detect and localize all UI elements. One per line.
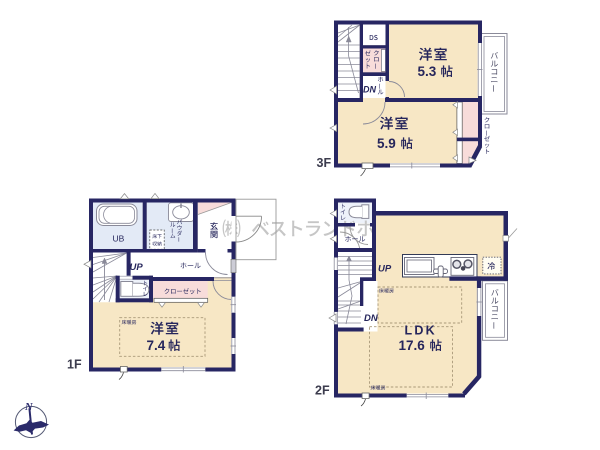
svg-text:7.4: 7.4 <box>147 338 166 353</box>
svg-text:LDK: LDK <box>405 324 437 338</box>
svg-text:UP: UP <box>378 264 392 275</box>
svg-text:17.6: 17.6 <box>399 338 426 353</box>
svg-text:DN: DN <box>363 85 376 95</box>
svg-text:DN: DN <box>364 313 379 324</box>
svg-text:5.9: 5.9 <box>377 136 396 151</box>
svg-text:1F: 1F <box>67 358 82 372</box>
svg-text:5.3: 5.3 <box>418 64 437 79</box>
svg-text:UB: UB <box>113 234 125 244</box>
svg-text:2F: 2F <box>315 384 330 398</box>
svg-text:UP: UP <box>130 262 144 273</box>
svg-text:N: N <box>24 402 33 413</box>
svg-text:3F: 3F <box>317 156 332 170</box>
